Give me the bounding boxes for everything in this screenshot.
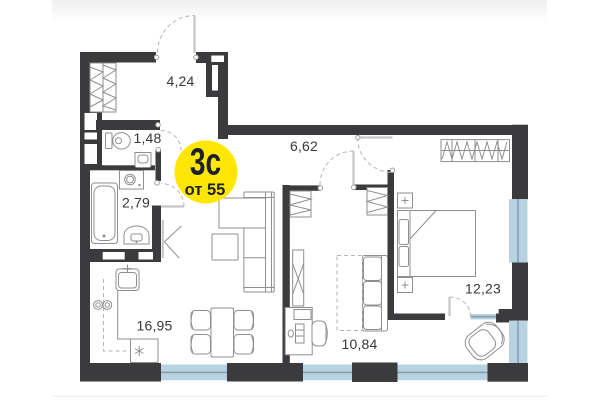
- svg-text:1,48: 1,48: [133, 130, 161, 146]
- svg-text:12,23: 12,23: [465, 281, 501, 297]
- svg-text:4,24: 4,24: [166, 73, 194, 89]
- svg-text:6,62: 6,62: [290, 138, 318, 154]
- svg-text:2,79: 2,79: [122, 195, 150, 211]
- svg-text:10,84: 10,84: [341, 336, 377, 352]
- svg-text:3с: 3с: [190, 141, 221, 183]
- svg-text:16,95: 16,95: [136, 318, 172, 334]
- svg-text:от 55: от 55: [185, 181, 226, 199]
